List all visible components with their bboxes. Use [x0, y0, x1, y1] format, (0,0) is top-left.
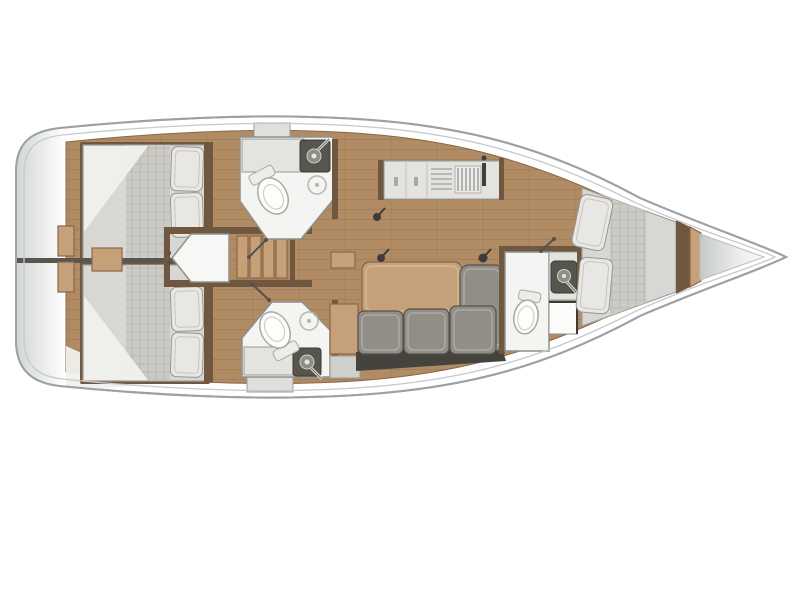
head-bulkhead [332, 139, 338, 219]
galley-bulkhead [378, 160, 384, 200]
deck-plan-svg [0, 0, 800, 600]
handrail-post [373, 213, 381, 221]
drain-dot [305, 360, 310, 365]
door-hinge [539, 249, 543, 253]
shower-dot [315, 183, 319, 187]
cabinet-handle [394, 177, 398, 186]
companionway-wall [164, 227, 170, 287]
stowage-box [330, 356, 360, 378]
stove-rail [482, 163, 486, 186]
pillow [170, 146, 204, 191]
cabinet-handle [414, 177, 418, 186]
interior [16, 108, 764, 408]
latch-dot [167, 261, 171, 265]
sofa-cushion [450, 306, 496, 354]
door-hinge [267, 298, 271, 302]
door-hinge [552, 237, 556, 241]
step-tread [250, 236, 261, 278]
vanity-counter [242, 139, 304, 172]
door-hinge [247, 255, 251, 259]
stern-locker [58, 262, 74, 292]
galley-bulkhead [499, 158, 504, 200]
drain-dot [562, 274, 566, 278]
shower-dot [307, 319, 311, 323]
forward-cabin [571, 188, 701, 326]
step-tread [237, 236, 248, 278]
stern-locker [58, 226, 74, 256]
companionway-wall [164, 280, 312, 287]
blanket [610, 198, 646, 314]
bench-seat [330, 304, 358, 354]
pillow [170, 332, 204, 377]
door-hinge [264, 238, 268, 242]
pillow [576, 257, 614, 315]
yacht-deck-plan [0, 0, 800, 600]
table-post [479, 254, 488, 263]
berth-headboard [676, 220, 690, 294]
vanity-seat [549, 302, 577, 334]
door-hinge [250, 282, 254, 286]
dining-table [362, 262, 462, 315]
stove-knob [482, 156, 487, 161]
bow-shelf [690, 227, 701, 287]
head-wall [499, 246, 505, 354]
galley [378, 156, 504, 201]
stove [455, 166, 481, 193]
latch-dot [167, 251, 171, 255]
deck-locker [254, 123, 290, 137]
steps-frame [290, 234, 295, 280]
pillow [170, 286, 204, 331]
step-tread [276, 236, 287, 278]
sofa-cushion [358, 311, 403, 354]
drain-dot [312, 154, 317, 159]
mid-berth-locker [92, 248, 122, 271]
sofa-cushion [404, 309, 449, 354]
aft-seat [331, 252, 355, 268]
table-post [377, 254, 385, 262]
deck-locker [247, 377, 293, 392]
